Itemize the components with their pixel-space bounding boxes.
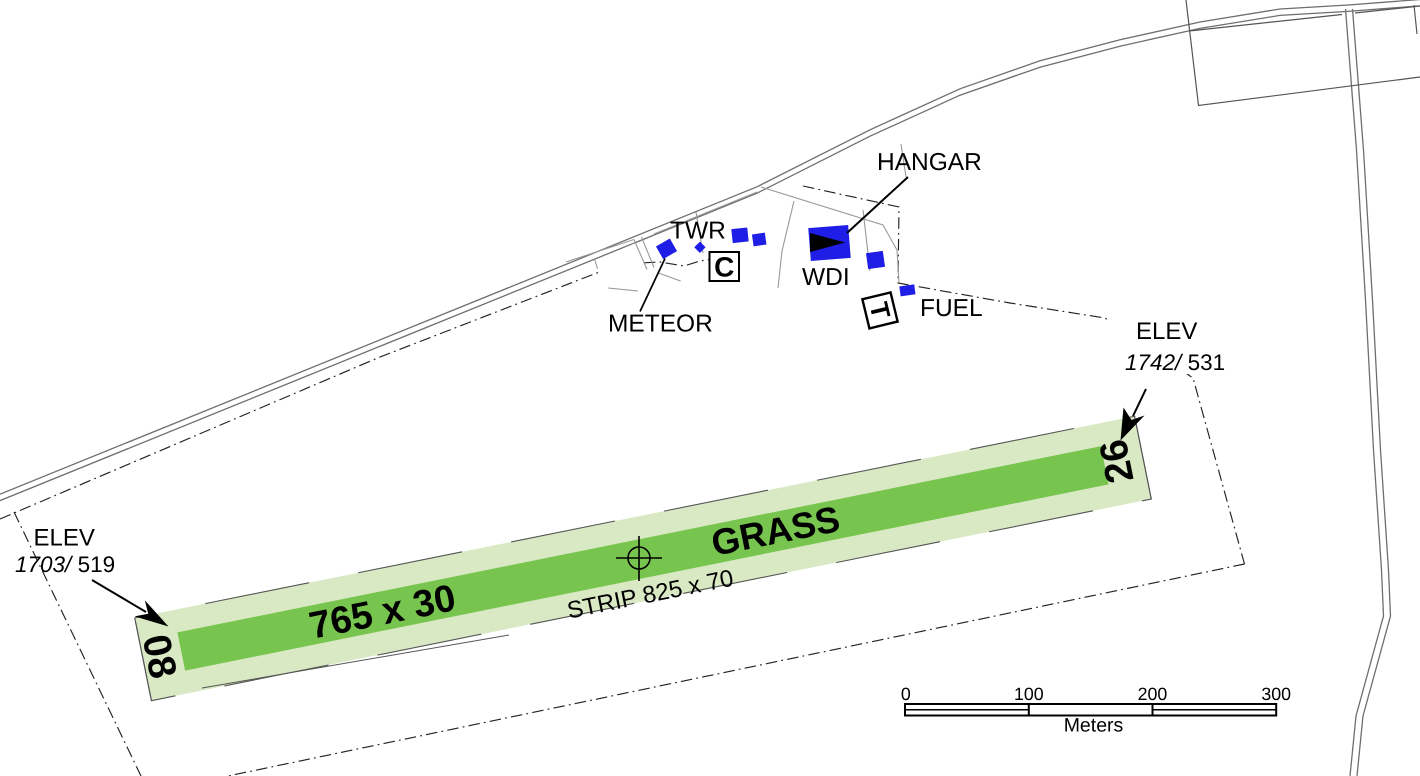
svg-text:100: 100	[1014, 684, 1044, 704]
svg-text:200: 200	[1138, 684, 1168, 704]
svg-text:26: 26	[1092, 436, 1143, 487]
svg-text:Meters: Meters	[1064, 715, 1124, 737]
svg-text:HANGAR: HANGAR	[877, 149, 982, 176]
svg-text:FUEL: FUEL	[920, 295, 983, 322]
svg-text:300: 300	[1261, 684, 1291, 704]
svg-text:METEOR: METEOR	[608, 311, 713, 338]
svg-text:ELEV: ELEV	[34, 525, 95, 552]
svg-text:1703/ 519: 1703/ 519	[15, 552, 115, 577]
svg-text:08: 08	[134, 631, 185, 682]
svg-text:WDI: WDI	[802, 264, 850, 291]
svg-text:1742/ 531: 1742/ 531	[1125, 350, 1225, 375]
svg-text:C: C	[714, 252, 734, 283]
svg-text:0: 0	[901, 684, 911, 704]
svg-text:TWR: TWR	[670, 218, 726, 245]
svg-text:ELEV: ELEV	[1136, 318, 1197, 345]
